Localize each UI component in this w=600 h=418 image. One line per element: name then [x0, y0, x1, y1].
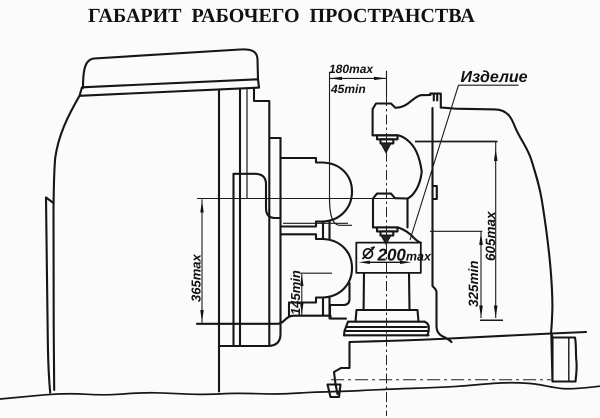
svg-text:45min: 45min	[330, 82, 366, 96]
svg-text:605max: 605max	[483, 211, 498, 261]
svg-text:200max: 200max	[377, 246, 432, 265]
svg-text:365max: 365max	[189, 254, 204, 302]
svg-text:Изделие: Изделие	[461, 69, 528, 86]
svg-text:145min: 145min	[288, 270, 303, 315]
svg-text:180max: 180max	[329, 62, 374, 76]
svg-text:ГАБАРИТ РАБОЧЕГО ПРОСТРАНСТВ: ГАБАРИТ РАБОЧЕГО ПРОСТРАНСТВА	[88, 5, 475, 27]
svg-text:325min: 325min	[466, 260, 481, 307]
